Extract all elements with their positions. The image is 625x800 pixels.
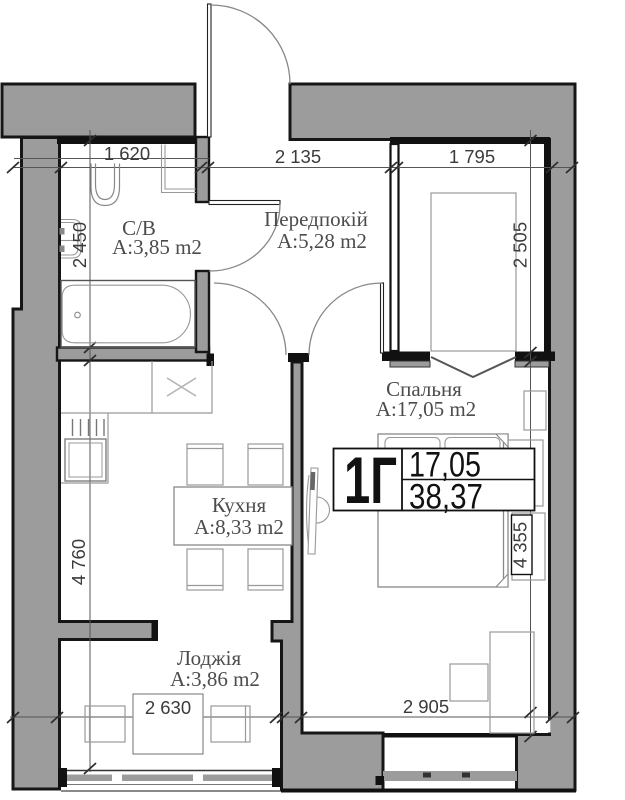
svg-text:Передпокій: Передпокій — [264, 207, 368, 231]
svg-text:А:3,85 m2: А:3,85 m2 — [112, 235, 202, 259]
svg-text:2 505: 2 505 — [509, 222, 530, 268]
svg-text:2 630: 2 630 — [145, 697, 191, 718]
svg-text:4 760: 4 760 — [68, 539, 89, 585]
svg-text:2 450: 2 450 — [69, 222, 90, 268]
svg-text:1 795: 1 795 — [449, 146, 495, 167]
svg-text:1 620: 1 620 — [104, 143, 150, 164]
svg-text:38,37: 38,37 — [409, 478, 483, 517]
svg-text:2 905: 2 905 — [403, 696, 449, 717]
svg-text:Кухня: Кухня — [212, 493, 267, 517]
svg-text:А:17,05 m2: А:17,05 m2 — [376, 397, 476, 421]
svg-text:2 135: 2 135 — [275, 146, 321, 167]
svg-text:1Г: 1Г — [344, 443, 397, 517]
svg-text:4 355: 4 355 — [509, 522, 530, 568]
svg-text:А:3,86 m2: А:3,86 m2 — [170, 667, 260, 691]
svg-text:А:5,28 m2: А:5,28 m2 — [277, 229, 367, 253]
svg-text:А:8,33 m2: А:8,33 m2 — [194, 515, 284, 539]
